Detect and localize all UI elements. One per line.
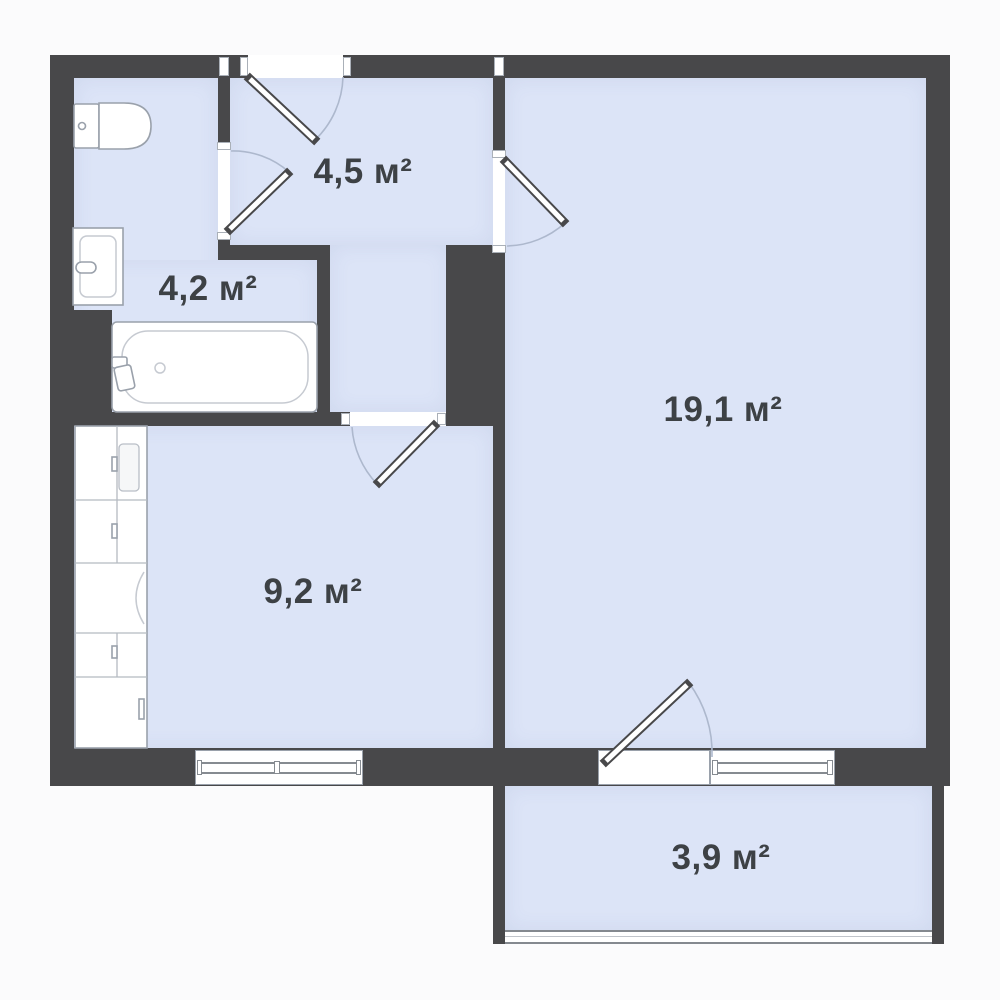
room-label-balcony: 3,9 м² — [672, 838, 771, 878]
kitchen-window-cap-right — [356, 760, 361, 775]
wall-balcony-right — [932, 786, 944, 944]
living-door-opening — [493, 158, 505, 245]
room-label-kitchen: 9,2 м² — [264, 572, 363, 612]
kitchen-window-cap-left — [197, 760, 202, 775]
balcony-glazing — [505, 930, 932, 944]
living-door-jamb-top — [492, 150, 506, 158]
wall-seam-living — [494, 57, 504, 76]
wall-bathroom-right — [317, 245, 330, 412]
living-door-jamb-bottom — [492, 245, 506, 253]
wall-balcony-left — [493, 786, 505, 944]
wall-duct — [74, 310, 112, 412]
bathroom-door-jamb-top — [217, 142, 231, 150]
balcony-window-frame — [716, 762, 832, 774]
kitchen-door-jamb-right — [437, 413, 446, 425]
bathroom-door-jamb-bottom — [217, 232, 231, 240]
entrance-jamb-right — [343, 57, 351, 76]
kitchen-door-jamb-left — [341, 413, 350, 425]
room-label-hallway: 4,5 м² — [314, 152, 413, 192]
bathroom-door-opening — [218, 150, 230, 232]
balcony-window-cap-left — [712, 760, 718, 775]
floor-plan: 4,5 м² 4,2 м² 19,1 м² 9,2 м² 3,9 м² — [0, 0, 1000, 1000]
wall-bathroom-horizontal — [218, 245, 330, 260]
balcony-door-window-divider — [709, 750, 711, 785]
wall-kitchen-top — [50, 412, 350, 426]
entrance-jamb-left — [240, 57, 248, 76]
kitchen-door-opening — [350, 412, 437, 426]
balcony-window-cap-right — [827, 760, 833, 775]
room-hallway-lower — [330, 245, 448, 412]
wall-seam-bathroom — [219, 57, 229, 76]
balcony-glazing-line — [505, 936, 932, 937]
kitchen-window-mullion — [274, 761, 280, 774]
room-label-living: 19,1 м² — [664, 390, 783, 430]
entrance-opening — [248, 55, 343, 78]
wall-right — [926, 55, 950, 786]
room-label-bathroom: 4,2 м² — [159, 269, 258, 309]
